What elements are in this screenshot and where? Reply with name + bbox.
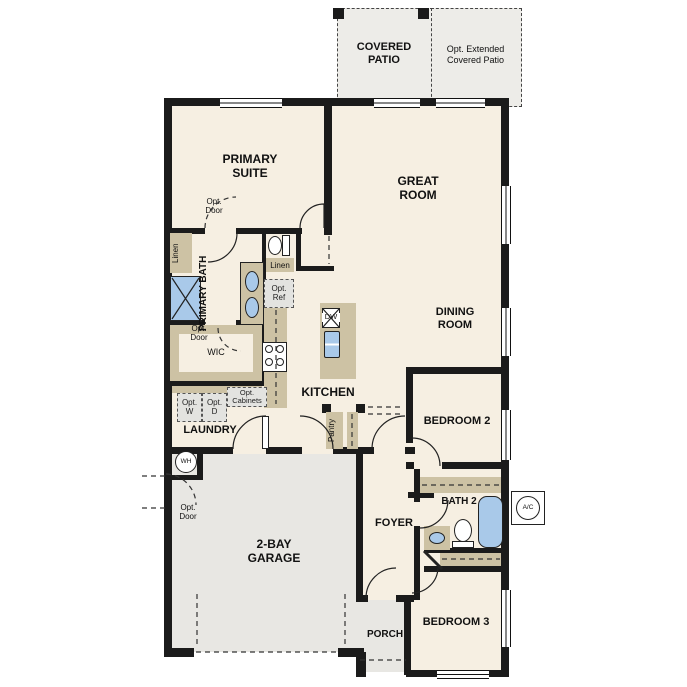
- opt-door-primary-label: Opt. Door: [198, 197, 230, 216]
- linen-horizontal-label: Linen: [266, 261, 294, 270]
- burner-1: [265, 345, 273, 353]
- floor-plan: COVERED PATIO Opt. Extended Covered Pati…: [0, 0, 687, 687]
- window-primary-suite-top: [220, 98, 282, 108]
- foyer-label: FOYER: [362, 517, 426, 530]
- water-heater-label: WH: [175, 458, 197, 466]
- burner-2: [276, 345, 284, 353]
- opt-door-garage-label: Opt. Door: [172, 503, 204, 522]
- wic-label: WIC: [201, 347, 231, 358]
- pantry-shelf-2: [347, 412, 358, 449]
- wall-bedroom2-bottom-b: [442, 462, 505, 469]
- toilet-bowl-primary: [268, 236, 282, 255]
- bathtub: [478, 496, 503, 548]
- wall-porch-stub: [356, 652, 366, 677]
- bedroom2-closet-shelf: [420, 477, 501, 493]
- burner-3: [265, 358, 273, 366]
- wall-porch-top-a: [356, 595, 368, 602]
- toilet-tank-primary: [282, 235, 290, 256]
- garage-label: 2-BAY GARAGE: [234, 537, 314, 565]
- toilet-base-bath2: [452, 541, 474, 548]
- dining-room-label: DINING ROOM: [425, 306, 485, 332]
- bedroom3-label: BEDROOM 3: [410, 616, 502, 629]
- bath2-sink: [429, 532, 445, 544]
- linen-vertical-label: Linen: [171, 234, 191, 272]
- covered-patio-label: COVERED PATIO: [349, 41, 419, 67]
- bedroom3-closet-shelf: [440, 553, 501, 566]
- laundry-door-panel: [262, 416, 269, 449]
- primary-suite-label: PRIMARY SUITE: [210, 152, 290, 180]
- window-great-room-top: [436, 98, 485, 108]
- great-room-label: GREAT ROOM: [383, 174, 453, 202]
- wall-wh-nook-h: [171, 475, 203, 480]
- patio-post-left: [333, 8, 344, 19]
- window-dining-right: [501, 308, 511, 356]
- pantry-label: Pantry: [327, 413, 342, 448]
- ac-label: A/C: [516, 504, 540, 512]
- opt-ref-box: Opt. Ref: [264, 279, 294, 308]
- wall-hall-bottom-b: [266, 447, 302, 454]
- toilet-bowl-bath2: [454, 519, 472, 542]
- bath2-label: BATH 2: [440, 496, 478, 508]
- shower: [170, 276, 201, 321]
- wall-foyer-right-b: [414, 526, 420, 600]
- opt-dryer-box: Opt. D: [202, 393, 227, 422]
- wall-hall-bottom-d: [405, 447, 415, 454]
- bedroom3-floor: [408, 555, 505, 673]
- patio-post-right: [418, 8, 429, 19]
- patio-slider-door: [374, 98, 420, 108]
- wall-garage-stub-left: [164, 648, 194, 657]
- opt-extended-patio-label: Opt. Extended Covered Patio: [435, 44, 516, 65]
- primary-sink-1: [245, 271, 259, 292]
- wall-bedroom2-dining: [406, 367, 505, 374]
- wall-below-primary-b: [236, 228, 302, 234]
- island-sink: [324, 331, 340, 358]
- wall-primary-great: [324, 98, 332, 235]
- wall-closet3-bottom: [424, 566, 505, 572]
- bedroom2-label: BEDROOM 2: [411, 415, 503, 428]
- wall-bedroom2-left: [406, 367, 413, 443]
- opt-cabinets-box: Opt. Cabinets: [227, 387, 267, 407]
- wall-toilet-nook-h: [296, 266, 334, 271]
- wall-wh-nook-v: [197, 449, 203, 477]
- primary-sink-2: [245, 297, 259, 318]
- wall-bedroom2-bottom-a: [406, 462, 414, 469]
- window-great-room-right: [501, 186, 511, 244]
- porch-label: PORCH: [362, 629, 408, 641]
- opt-door-wic-label: Opt. Door: [184, 324, 214, 343]
- primary-bath-label: PRIMARY BATH: [198, 252, 230, 334]
- wall-toilet-nook-v: [296, 234, 301, 266]
- kitchen-label: KITCHEN: [290, 385, 366, 399]
- dishwasher-label: DW: [322, 313, 340, 322]
- window-bedroom3-bottom: [437, 670, 489, 679]
- opt-washer-box: Opt. W: [177, 393, 202, 422]
- burner-4: [276, 358, 284, 366]
- window-bedroom3-right: [501, 590, 511, 647]
- laundry-label: LAUNDRY: [172, 424, 248, 437]
